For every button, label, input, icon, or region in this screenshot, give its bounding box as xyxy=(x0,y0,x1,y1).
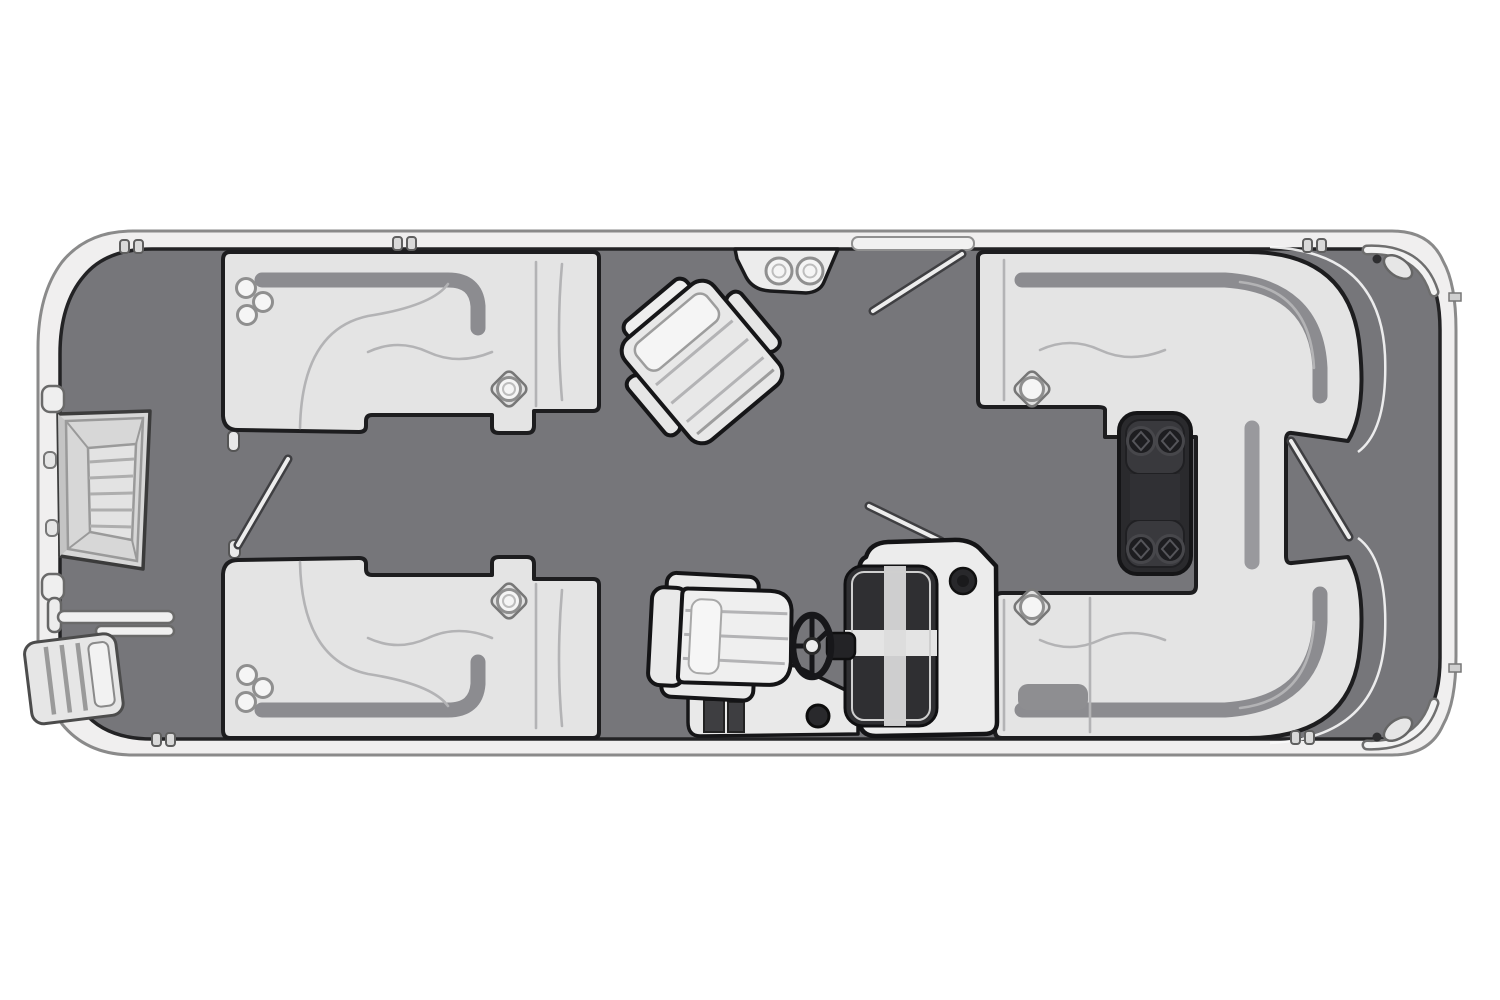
cupholder xyxy=(766,258,792,284)
cupholder xyxy=(498,378,521,401)
bow-gate-hinge-bottom xyxy=(42,574,64,600)
pontoon-floorplan-page xyxy=(0,0,1500,1000)
helm-base-vent xyxy=(728,702,744,732)
rail-bump xyxy=(44,452,56,468)
lounge-front-top xyxy=(223,252,599,433)
cupholder xyxy=(238,666,257,685)
cupholder xyxy=(238,306,257,325)
cupholder xyxy=(797,258,823,284)
cupholder xyxy=(237,693,256,712)
windscreen xyxy=(845,566,937,726)
cupholder xyxy=(498,590,521,613)
gate-post xyxy=(228,431,239,451)
seat-front-shadow xyxy=(1018,684,1088,710)
helm-base-speaker xyxy=(807,705,829,727)
cupholder xyxy=(254,293,273,312)
wheel-hub xyxy=(805,639,820,654)
cupholder xyxy=(1021,596,1044,619)
console-gauge-center xyxy=(957,575,969,587)
helm-base-vent xyxy=(704,700,724,732)
top-rail-gate-door xyxy=(852,237,974,250)
cupholder xyxy=(254,679,273,698)
lounge-front-bottom xyxy=(223,557,599,738)
stern-table xyxy=(1119,413,1191,574)
captain-chair xyxy=(647,572,795,703)
bow-gate-hinge-top xyxy=(42,386,64,412)
cupholder xyxy=(237,279,256,298)
cupholder xyxy=(1021,378,1044,401)
pontoon-floorplan-diagram xyxy=(0,0,1500,1000)
rail-bump xyxy=(46,520,58,536)
